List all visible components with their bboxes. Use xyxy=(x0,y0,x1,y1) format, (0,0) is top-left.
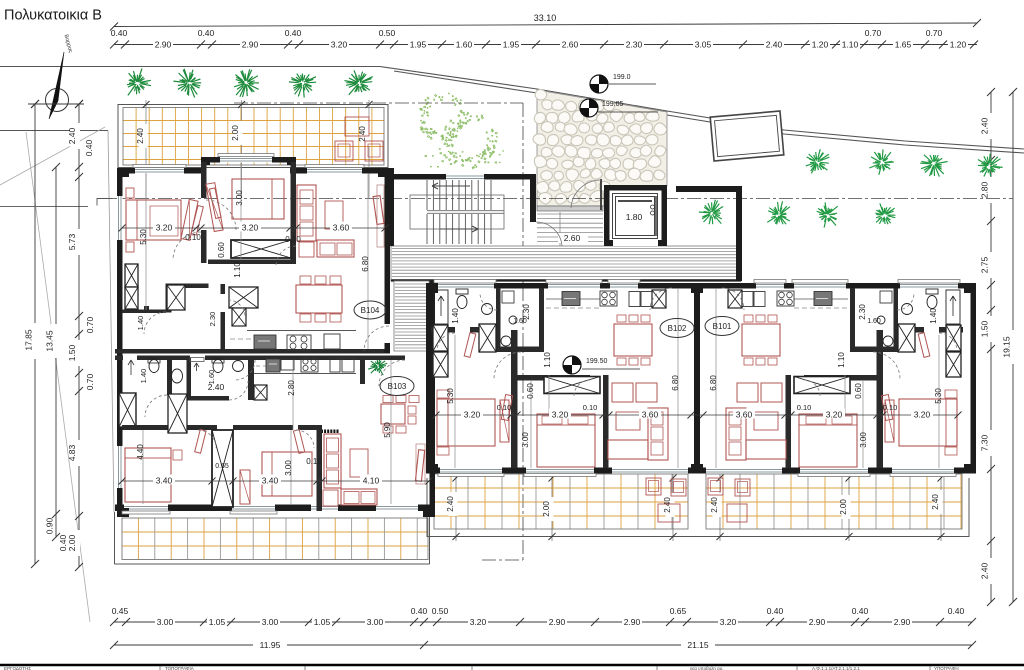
svg-text:7.30: 7.30 xyxy=(980,434,990,451)
svg-text:3.20: 3.20 xyxy=(826,410,843,420)
svg-text:0.65: 0.65 xyxy=(670,606,687,616)
svg-text:2.80: 2.80 xyxy=(980,181,990,198)
svg-text:17.85: 17.85 xyxy=(24,329,34,351)
svg-text:0.40: 0.40 xyxy=(111,28,128,38)
svg-text:2.90: 2.90 xyxy=(809,617,826,627)
svg-text:6.80: 6.80 xyxy=(709,375,718,391)
svg-text:ΤΟΠΟΓΡΑΦΙΑ: ΤΟΠΟΓΡΑΦΙΑ xyxy=(165,666,194,670)
svg-text:3.00: 3.00 xyxy=(284,460,293,476)
svg-text:0.10: 0.10 xyxy=(497,403,512,412)
svg-text:2.60: 2.60 xyxy=(562,40,579,50)
svg-text:1.40: 1.40 xyxy=(136,316,145,331)
svg-text:3.20: 3.20 xyxy=(914,410,931,420)
svg-text:2.90: 2.90 xyxy=(242,40,259,50)
svg-text:B101: B101 xyxy=(713,322,732,331)
svg-text:3.60: 3.60 xyxy=(642,410,659,420)
svg-text:1.95: 1.95 xyxy=(410,40,427,50)
svg-text:1.80: 1.80 xyxy=(626,212,643,222)
svg-text:2.30: 2.30 xyxy=(522,304,531,320)
svg-text:11.95: 11.95 xyxy=(260,640,281,650)
svg-text:3.00: 3.00 xyxy=(859,432,868,448)
svg-text:1.10: 1.10 xyxy=(837,352,846,368)
svg-text:4.10: 4.10 xyxy=(363,476,380,486)
svg-text:ΥΠΟΓΡΑΦΗ: ΥΠΟΓΡΑΦΗ xyxy=(934,666,959,670)
svg-text:0.40: 0.40 xyxy=(852,606,869,616)
svg-text:2.40: 2.40 xyxy=(980,562,990,579)
svg-text:0.60: 0.60 xyxy=(526,383,535,399)
svg-text:3.20: 3.20 xyxy=(242,223,259,233)
svg-text:0.10: 0.10 xyxy=(306,457,322,466)
svg-text:B102: B102 xyxy=(668,324,687,333)
svg-text:B104: B104 xyxy=(361,306,380,315)
svg-text:1.10: 1.10 xyxy=(543,352,552,368)
svg-text:0.10: 0.10 xyxy=(883,403,898,412)
svg-text:5.73: 5.73 xyxy=(67,233,77,250)
svg-text:2.00: 2.00 xyxy=(542,501,551,517)
svg-text:1.10: 1.10 xyxy=(842,40,859,50)
svg-text:1.95: 1.95 xyxy=(503,40,520,50)
svg-text:3.40: 3.40 xyxy=(262,476,279,486)
svg-text:1.60: 1.60 xyxy=(207,370,216,385)
svg-text:5.30: 5.30 xyxy=(139,229,148,245)
svg-text:3.20: 3.20 xyxy=(470,617,487,627)
svg-text:2.40: 2.40 xyxy=(358,126,367,142)
svg-text:199.05: 199.05 xyxy=(602,101,624,108)
svg-text:2.30: 2.30 xyxy=(858,304,867,320)
svg-text:3.60: 3.60 xyxy=(736,410,753,420)
svg-text:0.65: 0.65 xyxy=(215,463,229,470)
svg-text:5.30: 5.30 xyxy=(934,388,943,404)
svg-text:19.15: 19.15 xyxy=(1002,336,1012,358)
svg-text:3.20: 3.20 xyxy=(720,617,737,627)
svg-text:0.10: 0.10 xyxy=(583,403,598,412)
svg-text:2.40: 2.40 xyxy=(931,494,940,510)
svg-text:1.40: 1.40 xyxy=(451,308,460,324)
svg-text:0.40: 0.40 xyxy=(411,606,428,616)
svg-text:0.40: 0.40 xyxy=(198,28,215,38)
svg-text:3.00: 3.00 xyxy=(262,617,279,627)
svg-text:1.50: 1.50 xyxy=(67,344,77,361)
svg-text:2.40: 2.40 xyxy=(766,40,783,50)
svg-text:2.40: 2.40 xyxy=(663,497,672,513)
svg-text:1.10: 1.10 xyxy=(233,262,242,278)
svg-text:1.05: 1.05 xyxy=(209,617,226,627)
svg-text:2.00: 2.00 xyxy=(839,499,848,515)
svg-text:0.50: 0.50 xyxy=(432,606,449,616)
svg-text:13.45: 13.45 xyxy=(45,330,55,352)
svg-text:6.80: 6.80 xyxy=(361,256,370,272)
svg-text:B103: B103 xyxy=(388,382,407,391)
svg-text:0.70: 0.70 xyxy=(865,28,882,38)
svg-text:1.65: 1.65 xyxy=(895,40,912,50)
svg-text:3.20: 3.20 xyxy=(464,410,481,420)
svg-text:0.70: 0.70 xyxy=(926,28,943,38)
svg-text:0.10: 0.10 xyxy=(285,235,301,244)
svg-text:4.40: 4.40 xyxy=(136,444,145,460)
svg-text:ΕΡΓΟΔΟΤΗΣ: ΕΡΓΟΔΟΤΗΣ xyxy=(4,666,31,670)
svg-text:0.90: 0.90 xyxy=(45,517,55,534)
svg-text:2.90: 2.90 xyxy=(894,617,911,627)
svg-text:2.60: 2.60 xyxy=(564,233,581,243)
svg-text:1.60: 1.60 xyxy=(867,318,881,325)
svg-text:νεα υποβολη αρ.: νεα υποβολη αρ. xyxy=(690,666,724,670)
svg-text:2.90: 2.90 xyxy=(549,617,566,627)
svg-text:0.70: 0.70 xyxy=(85,316,95,333)
svg-text:6.80: 6.80 xyxy=(671,375,680,391)
svg-text:3.00: 3.00 xyxy=(367,617,384,627)
svg-text:2.40: 2.40 xyxy=(980,117,990,134)
svg-text:0.40: 0.40 xyxy=(767,606,784,616)
svg-text:2.00: 2.00 xyxy=(231,125,240,141)
svg-text:3.40: 3.40 xyxy=(156,476,173,486)
svg-text:21.15: 21.15 xyxy=(687,640,709,650)
svg-text:0.45: 0.45 xyxy=(112,606,129,616)
svg-text:2.80: 2.80 xyxy=(287,380,296,396)
svg-text:2.40: 2.40 xyxy=(446,496,455,512)
svg-text:33.10: 33.10 xyxy=(534,13,557,23)
svg-text:2.75: 2.75 xyxy=(980,256,990,273)
svg-text:2.90: 2.90 xyxy=(155,40,172,50)
svg-text:2.30: 2.30 xyxy=(208,312,217,327)
svg-text:2.40: 2.40 xyxy=(67,127,77,144)
svg-text:3.20: 3.20 xyxy=(331,40,348,50)
svg-text:2.40: 2.40 xyxy=(136,128,145,144)
svg-text:0.50: 0.50 xyxy=(379,28,396,38)
svg-text:199.50: 199.50 xyxy=(586,358,608,365)
svg-text:3.20: 3.20 xyxy=(156,223,173,233)
svg-text:3.05: 3.05 xyxy=(695,40,712,50)
svg-text:1.40: 1.40 xyxy=(139,369,148,384)
svg-text:0.10: 0.10 xyxy=(797,403,812,412)
svg-text:Α.Φ.1.1.1/ΑΤ.2.1.1/1.2.1: Α.Φ.1.1.1/ΑΤ.2.1.1/1.2.1 xyxy=(812,666,860,670)
svg-text:Πολυκατοικια Β: Πολυκατοικια Β xyxy=(4,8,102,24)
svg-text:2.30: 2.30 xyxy=(626,40,643,50)
svg-text:0.70: 0.70 xyxy=(85,373,95,390)
svg-text:1.05: 1.05 xyxy=(314,617,331,627)
svg-text:2.40: 2.40 xyxy=(710,497,719,513)
svg-text:0.40: 0.40 xyxy=(948,606,965,616)
svg-text:4.83: 4.83 xyxy=(67,444,77,461)
svg-text:0.40: 0.40 xyxy=(84,139,94,156)
svg-text:3.60: 3.60 xyxy=(333,223,350,233)
svg-text:1.40: 1.40 xyxy=(929,308,938,324)
svg-text:0.10: 0.10 xyxy=(185,233,201,242)
svg-text:3.00: 3.00 xyxy=(235,190,244,206)
svg-text:2.00: 2.00 xyxy=(67,534,77,551)
svg-text:0.40: 0.40 xyxy=(285,28,302,38)
svg-text:0.60: 0.60 xyxy=(854,383,863,399)
svg-text:1.20: 1.20 xyxy=(950,40,967,50)
svg-text:5.30: 5.30 xyxy=(446,388,455,404)
svg-text:3.00: 3.00 xyxy=(521,432,530,448)
svg-text:1.60: 1.60 xyxy=(456,40,473,50)
svg-text:0.40: 0.40 xyxy=(58,534,68,551)
svg-text:3.00: 3.00 xyxy=(157,617,174,627)
svg-text:1.50: 1.50 xyxy=(980,320,990,337)
svg-text:0.60: 0.60 xyxy=(217,242,226,258)
svg-text:3.20: 3.20 xyxy=(552,410,569,420)
svg-text:5.90: 5.90 xyxy=(383,422,392,438)
svg-text:199.0: 199.0 xyxy=(613,74,631,81)
svg-text:1.20: 1.20 xyxy=(812,40,829,50)
svg-text:2.90: 2.90 xyxy=(624,617,641,627)
